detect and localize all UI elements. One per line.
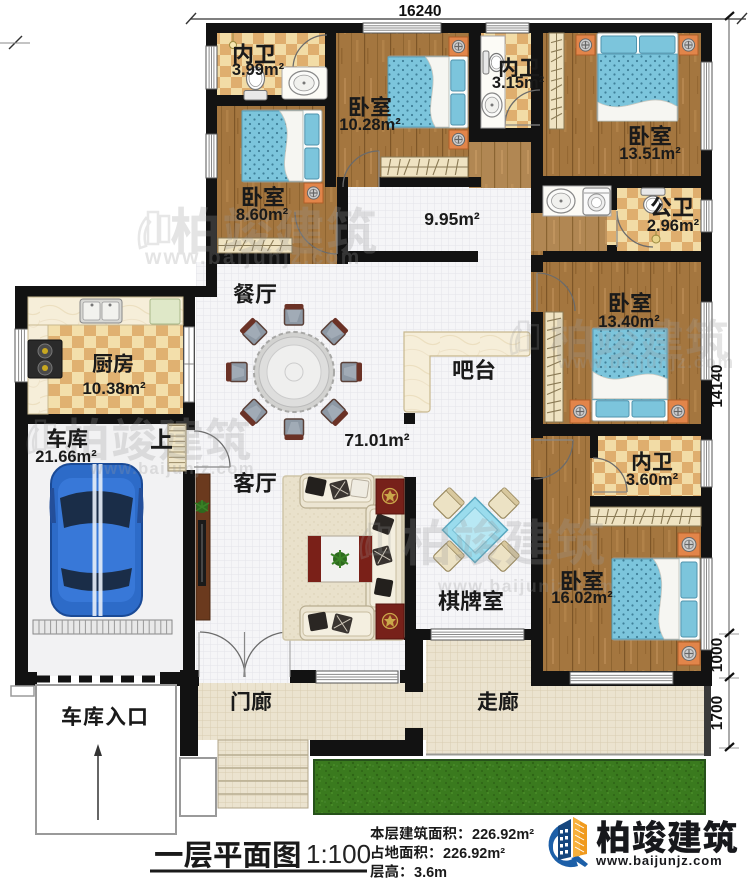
svg-text:1700: 1700 bbox=[709, 696, 726, 730]
svg-text:8.60m²: 8.60m² bbox=[236, 206, 289, 224]
svg-text:226.92m²: 226.92m² bbox=[443, 846, 505, 862]
svg-text:10.28m²: 10.28m² bbox=[339, 116, 401, 134]
svg-text:10.38m²: 10.38m² bbox=[82, 379, 146, 398]
svg-text:13.51m²: 13.51m² bbox=[619, 145, 681, 163]
svg-text:www.baijunjz.com: www.baijunjz.com bbox=[144, 246, 361, 269]
svg-text:3.60m²: 3.60m² bbox=[626, 471, 679, 489]
svg-text:3.99m²: 3.99m² bbox=[232, 61, 285, 79]
svg-text:2.96m²: 2.96m² bbox=[647, 217, 700, 235]
svg-text:14140: 14140 bbox=[709, 364, 726, 407]
svg-text:3.15m²: 3.15m² bbox=[492, 74, 545, 92]
svg-text:226.92m²: 226.92m² bbox=[472, 827, 534, 843]
svg-text:21.66m²: 21.66m² bbox=[35, 448, 97, 466]
svg-text:16.02m²: 16.02m² bbox=[551, 589, 613, 607]
svg-text:13.40m²: 13.40m² bbox=[598, 313, 660, 331]
svg-text:www.baijunjz.com: www.baijunjz.com bbox=[89, 460, 255, 478]
svg-text:www.baijunjz.com: www.baijunjz.com bbox=[595, 853, 723, 868]
svg-text:www.baijunjz.com: www.baijunjz.com bbox=[557, 352, 735, 372]
svg-text:3.6m: 3.6m bbox=[414, 865, 447, 881]
svg-text:1000: 1000 bbox=[709, 638, 726, 672]
svg-text:9.95m²: 9.95m² bbox=[424, 209, 480, 229]
svg-text:16240: 16240 bbox=[398, 3, 441, 20]
svg-text:1:100: 1:100 bbox=[306, 839, 371, 869]
svg-text:71.01m²: 71.01m² bbox=[344, 430, 409, 450]
